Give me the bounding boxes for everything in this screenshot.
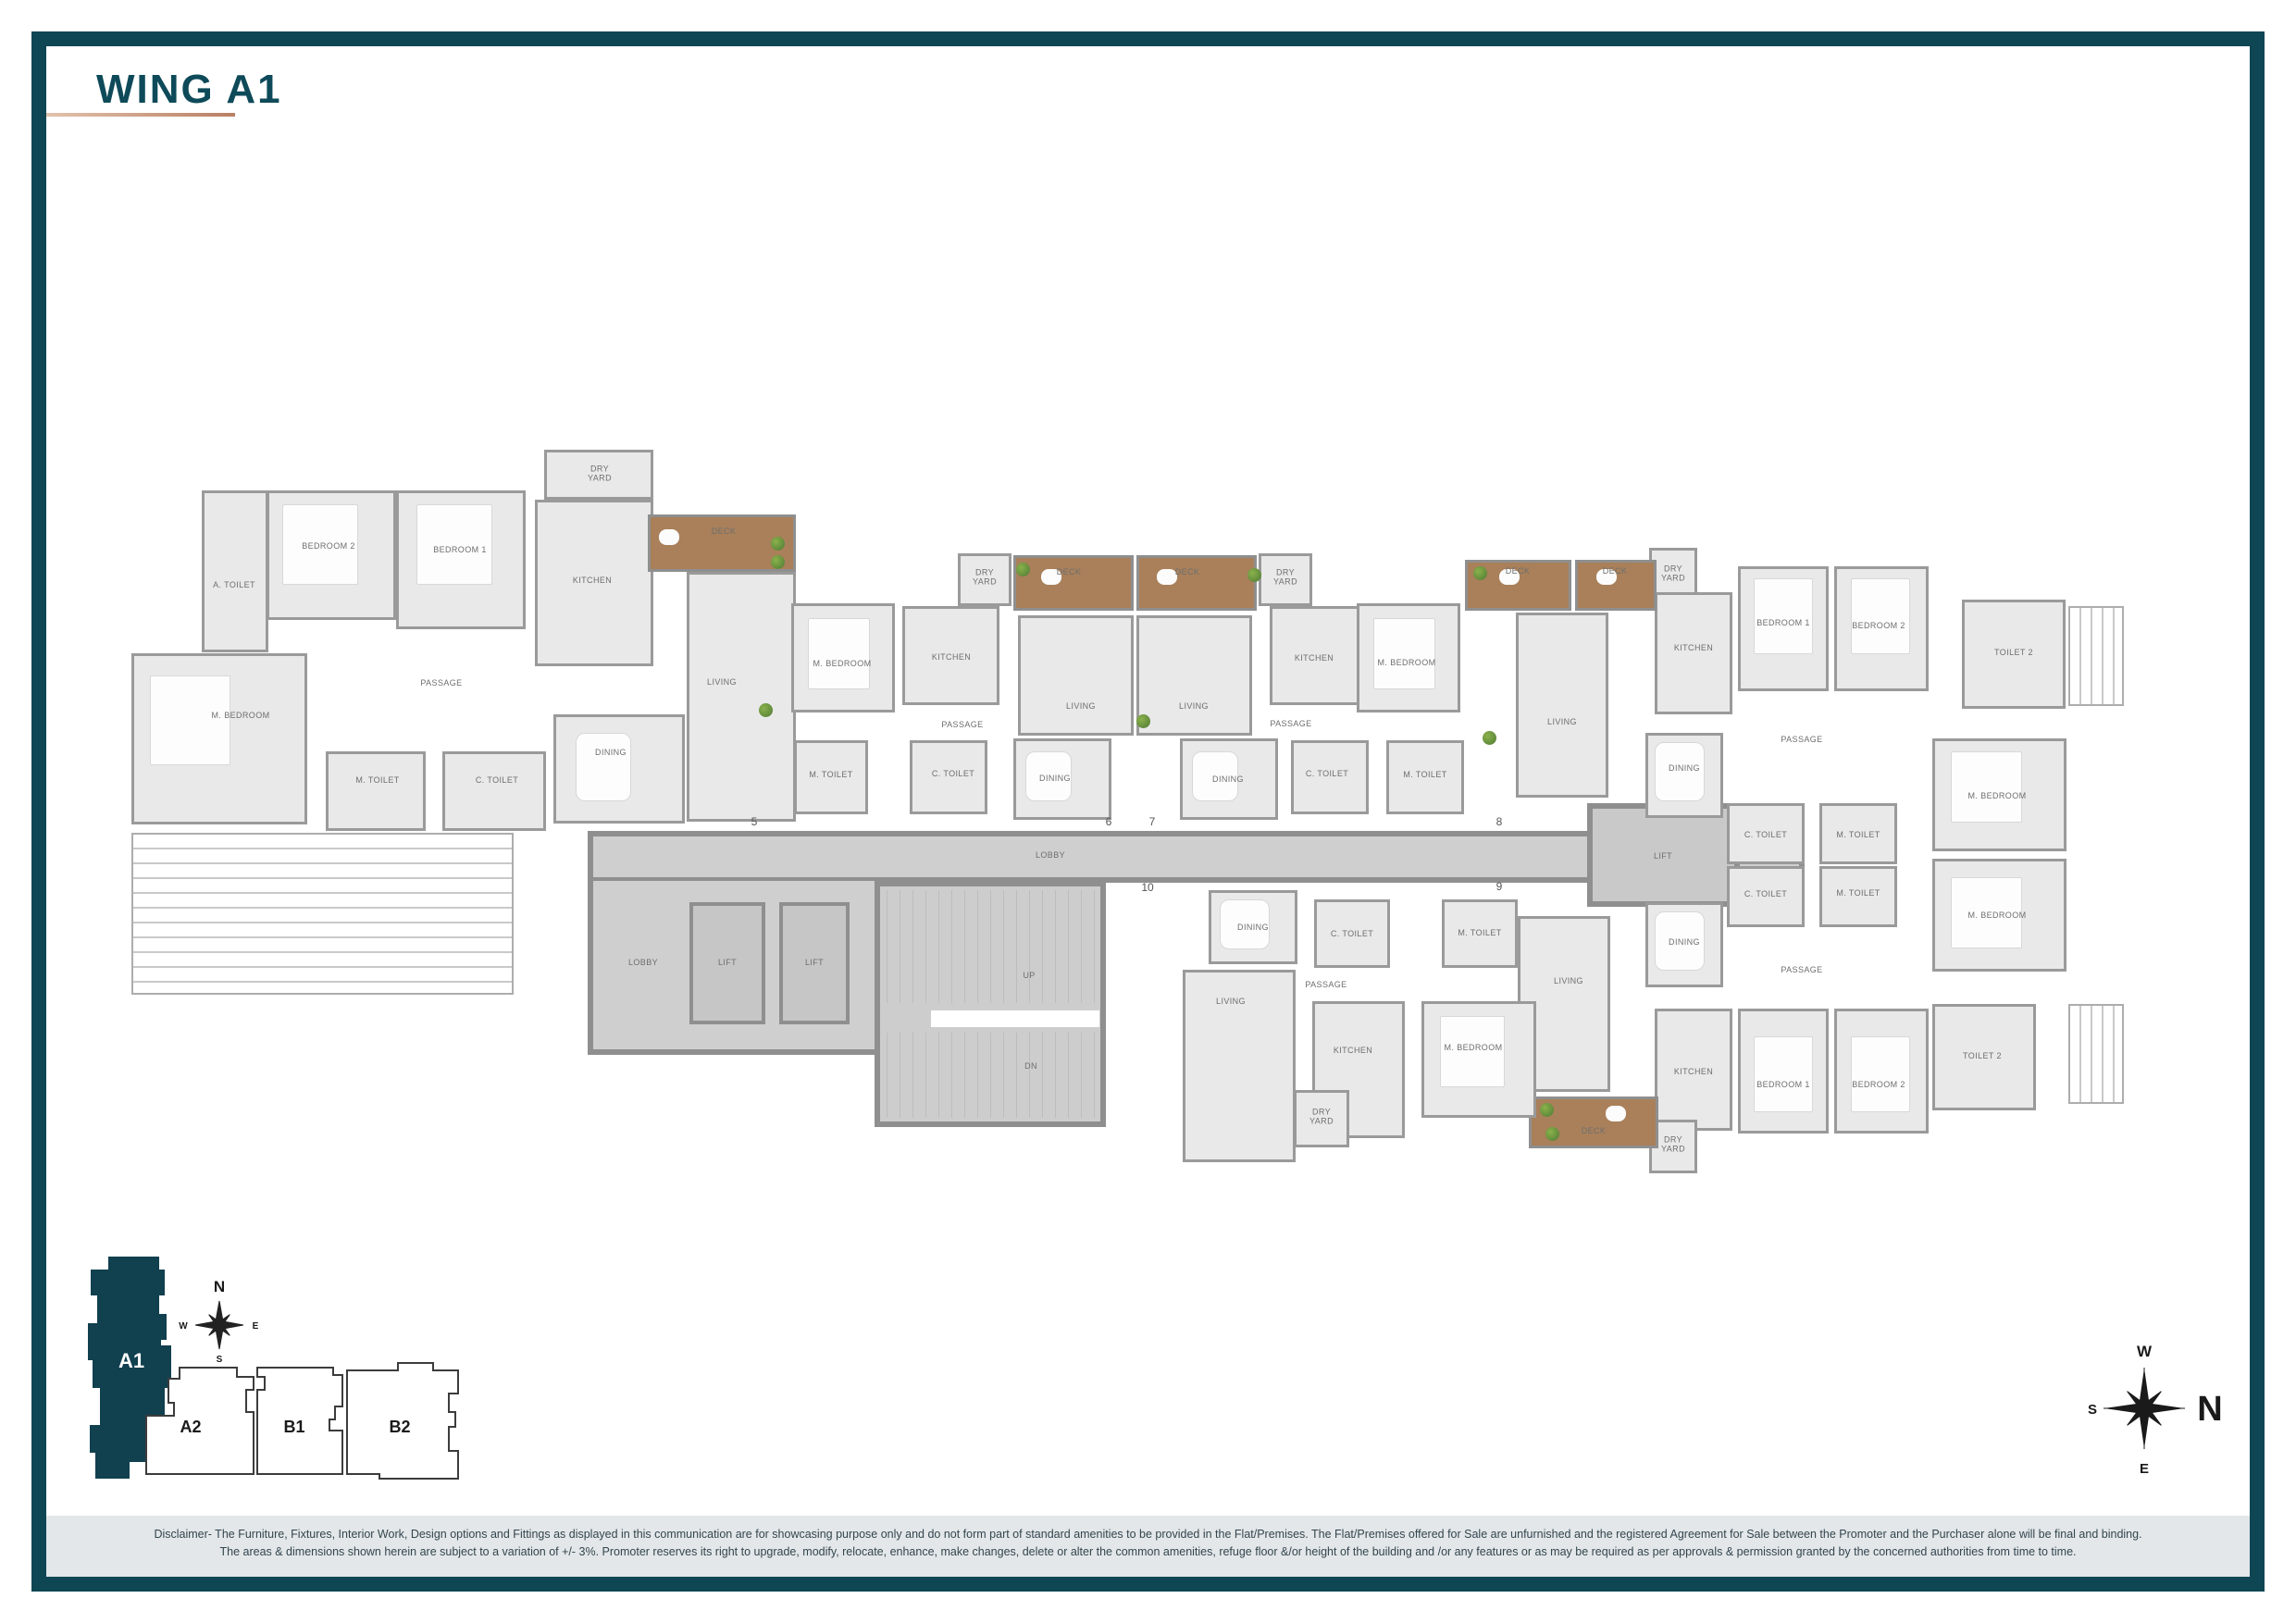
planter-ledge	[131, 833, 514, 995]
room-label: DECK	[1175, 567, 1200, 576]
stair-treads	[887, 890, 1098, 1003]
unit-number: 7	[1149, 815, 1156, 828]
room-label: DECK	[712, 527, 737, 536]
keyplan-compass-w: W	[179, 1321, 188, 1332]
plant-icon	[1545, 1127, 1559, 1141]
compass-w: W	[2137, 1343, 2153, 1360]
unit-number: 10	[1141, 881, 1153, 894]
room-label: M. BEDROOM	[813, 659, 871, 668]
room-label: DRY YARD	[1269, 568, 1302, 588]
room-label: PASSAGE	[1305, 980, 1347, 989]
deck	[1136, 555, 1257, 611]
room-label: A. TOILET	[213, 580, 255, 589]
disclaimer-line1: Disclaimer- The Furniture, Fixtures, Int…	[46, 1526, 2250, 1543]
plant-icon	[1136, 714, 1150, 728]
unit-number: 8	[1496, 815, 1503, 828]
bed-furniture	[1851, 578, 1910, 654]
bed-furniture	[1851, 1036, 1910, 1112]
bed-furniture	[1373, 618, 1435, 689]
room-label: DECK	[1603, 566, 1628, 576]
room-rect	[1018, 615, 1134, 736]
deck	[1013, 555, 1134, 611]
deck-chair	[659, 529, 679, 545]
room-label: LIFT	[1654, 851, 1672, 861]
room-rect	[442, 751, 546, 831]
unit-number: 5	[751, 815, 758, 828]
compass-n: N	[2197, 1390, 2222, 1429]
stair-landing	[931, 1010, 1099, 1027]
room-label: KITCHEN	[573, 576, 612, 585]
room-label: DINING	[1669, 937, 1700, 947]
room-rect	[1655, 592, 1732, 714]
room-label: DINING	[595, 748, 627, 757]
wing-a2-label: A2	[180, 1418, 201, 1436]
bed-furniture	[808, 618, 870, 689]
wing-b1-label: B1	[283, 1418, 304, 1436]
room-label: UP	[1023, 971, 1035, 980]
wing-b2-label: B2	[389, 1418, 410, 1436]
room-rect	[687, 572, 796, 822]
room-label: DINING	[1237, 923, 1269, 932]
room-label: BEDROOM 2	[1852, 1080, 1905, 1089]
room-label: DRY YARD	[1305, 1108, 1338, 1127]
room-label: M. BEDROOM	[1967, 911, 2026, 920]
room-label: LIVING	[1216, 997, 1246, 1006]
room-label: DN	[1024, 1061, 1037, 1071]
room-rect	[1516, 613, 1608, 798]
room-label: BEDROOM 2	[1852, 621, 1905, 630]
plant-icon	[1483, 731, 1496, 745]
disclaimer-line2: The areas & dimensions shown herein are …	[46, 1543, 2250, 1561]
room-label: DECK	[1057, 567, 1082, 576]
room-label: KITCHEN	[1674, 643, 1713, 652]
room-rect	[326, 751, 426, 831]
room-label: KITCHEN	[932, 652, 971, 662]
room-label: LIVING	[1179, 701, 1209, 711]
room-label: PASSAGE	[1781, 965, 1822, 974]
deck-chair	[1157, 569, 1177, 585]
room-label: LIFT	[805, 958, 824, 967]
room-label: C. TOILET	[1331, 929, 1373, 938]
room-label: M. BEDROOM	[1967, 791, 2026, 800]
wing-a1-label: A1	[118, 1349, 144, 1372]
room-label: PASSAGE	[1781, 735, 1822, 744]
room-label: C. TOILET	[932, 769, 974, 778]
room-label: DRY YARD	[1657, 1135, 1690, 1155]
keyplan-compass-e: E	[253, 1321, 259, 1332]
room-label: PASSAGE	[941, 720, 983, 729]
room-label: DINING	[1212, 774, 1244, 784]
keyplan-compass-n: N	[214, 1278, 225, 1295]
room-label: M. TOILET	[1836, 888, 1880, 898]
room-label: C. TOILET	[476, 775, 518, 785]
room-label: DECK	[1582, 1126, 1607, 1135]
room-label: BEDROOM 1	[1756, 1080, 1810, 1089]
room-label: M. TOILET	[1836, 830, 1880, 839]
bed-furniture	[1951, 751, 2022, 823]
table-furniture	[576, 733, 631, 801]
room-label: M. BEDROOM	[211, 711, 269, 720]
unit-number: 6	[1106, 815, 1112, 828]
room-label: M. TOILET	[1403, 770, 1446, 779]
room-label: LIFT	[718, 958, 737, 967]
room-label: M. BEDROOM	[1444, 1043, 1502, 1052]
plant-icon	[771, 537, 785, 551]
plant-icon	[1016, 563, 1030, 576]
room-label: DRY YARD	[1657, 564, 1690, 584]
room-rect	[1136, 615, 1252, 736]
room-label: LIVING	[707, 677, 737, 687]
stair-treads	[887, 1033, 1098, 1118]
room-label: LIVING	[1547, 717, 1577, 726]
keyplan-compass-icon	[195, 1301, 243, 1349]
room-label: KITCHEN	[1295, 653, 1334, 663]
room-label: BEDROOM 2	[302, 541, 355, 551]
compass-rose: W N S E	[2078, 1323, 2244, 1490]
deck-chair	[1606, 1106, 1626, 1121]
unit-number: 9	[1496, 880, 1503, 893]
room-label: DECK	[1506, 566, 1531, 576]
room-label: LOBBY	[1036, 850, 1065, 860]
room-label: DRY YARD	[583, 465, 616, 484]
room-label: C. TOILET	[1306, 769, 1348, 778]
room-label: PASSAGE	[1270, 719, 1311, 728]
compass-s: S	[2088, 1402, 2097, 1418]
room-label: DINING	[1039, 774, 1071, 783]
room-label: C. TOILET	[1744, 830, 1787, 839]
plant-icon	[759, 703, 773, 717]
room-label: M. TOILET	[809, 770, 852, 779]
planter-ledge	[2068, 1004, 2124, 1104]
room-label: KITCHEN	[1334, 1046, 1372, 1055]
keyplan-compass-s: S	[217, 1355, 223, 1365]
plant-icon	[1247, 568, 1261, 582]
bed-furniture	[150, 675, 230, 765]
room-label: TOILET 2	[1963, 1051, 2002, 1060]
room-label: LIVING	[1554, 976, 1583, 985]
room-label: TOILET 2	[1994, 648, 2033, 657]
room-label: PASSAGE	[420, 678, 462, 688]
room-rect	[202, 490, 268, 652]
room-label: C. TOILET	[1744, 889, 1787, 898]
plant-icon	[1473, 566, 1487, 580]
plant-icon	[1540, 1103, 1554, 1117]
room-label: LIVING	[1066, 701, 1096, 711]
compass-e: E	[2140, 1461, 2149, 1477]
room-label: BEDROOM 1	[1756, 618, 1810, 627]
room-label: DINING	[1669, 763, 1700, 773]
bed-furniture	[1754, 578, 1813, 654]
room-label: M. BEDROOM	[1377, 658, 1435, 667]
planter-ledge	[2068, 606, 2124, 706]
bed-furniture	[1754, 1036, 1813, 1112]
room-label: M. TOILET	[355, 775, 399, 785]
plant-icon	[771, 555, 785, 569]
room-label: BEDROOM 1	[433, 545, 487, 554]
key-plan: A1 N W E S A2 B1 B2	[56, 1231, 518, 1555]
room-label: DRY YARD	[968, 568, 1001, 588]
room-label: KITCHEN	[1674, 1067, 1713, 1076]
room-label: M. TOILET	[1458, 928, 1501, 937]
room-label: LOBBY	[628, 958, 658, 967]
disclaimer-bar: Disclaimer- The Furniture, Fixtures, Int…	[46, 1516, 2250, 1577]
